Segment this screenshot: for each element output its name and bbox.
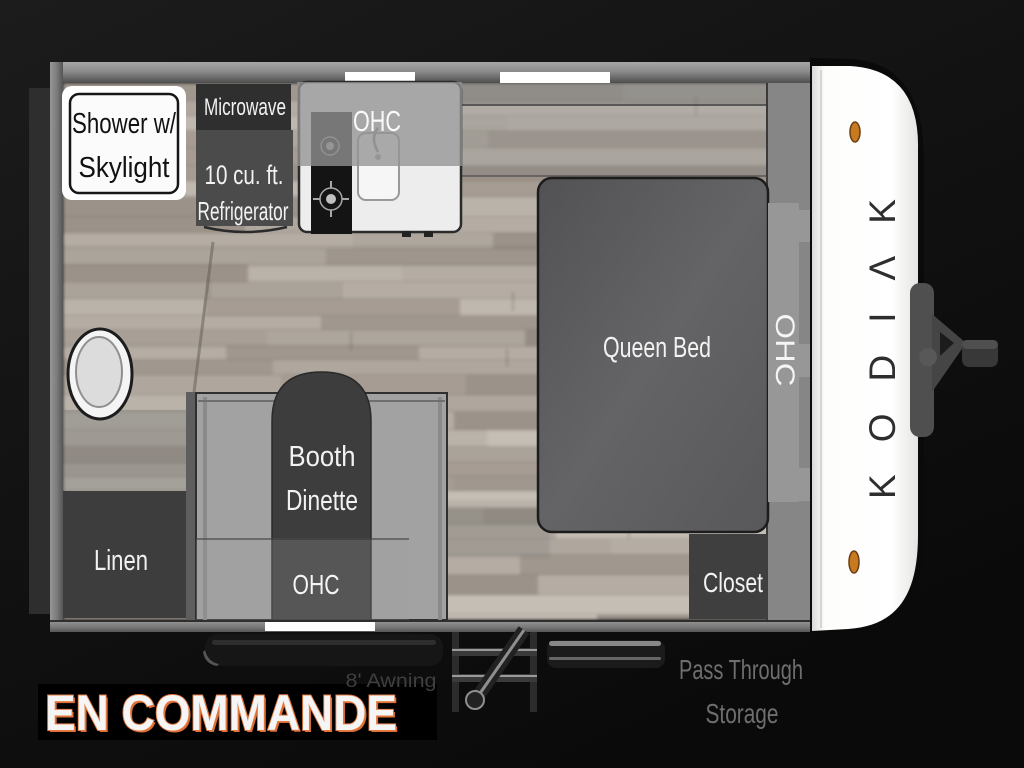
svg-text:OHC: OHC <box>770 314 800 387</box>
svg-text:Pass Through: Pass Through <box>679 654 803 685</box>
svg-text:10 cu. ft.: 10 cu. ft. <box>205 160 284 190</box>
svg-text:EN COMMANDE: EN COMMANDE <box>45 685 397 741</box>
svg-text:Microwave: Microwave <box>204 94 286 121</box>
svg-text:Linen: Linen <box>94 545 148 577</box>
svg-text:Queen Bed: Queen Bed <box>603 332 711 364</box>
svg-text:Booth: Booth <box>289 441 356 473</box>
svg-text:OHC: OHC <box>353 106 401 138</box>
svg-text:OHC: OHC <box>293 569 340 600</box>
svg-text:Dinette: Dinette <box>286 485 358 517</box>
svg-text:Refrigerator: Refrigerator <box>198 196 289 226</box>
svg-text:Storage: Storage <box>706 698 779 729</box>
svg-text:Shower w/: Shower w/ <box>72 108 177 140</box>
svg-text:Closet: Closet <box>703 567 763 598</box>
svg-text:Skylight: Skylight <box>79 152 170 184</box>
